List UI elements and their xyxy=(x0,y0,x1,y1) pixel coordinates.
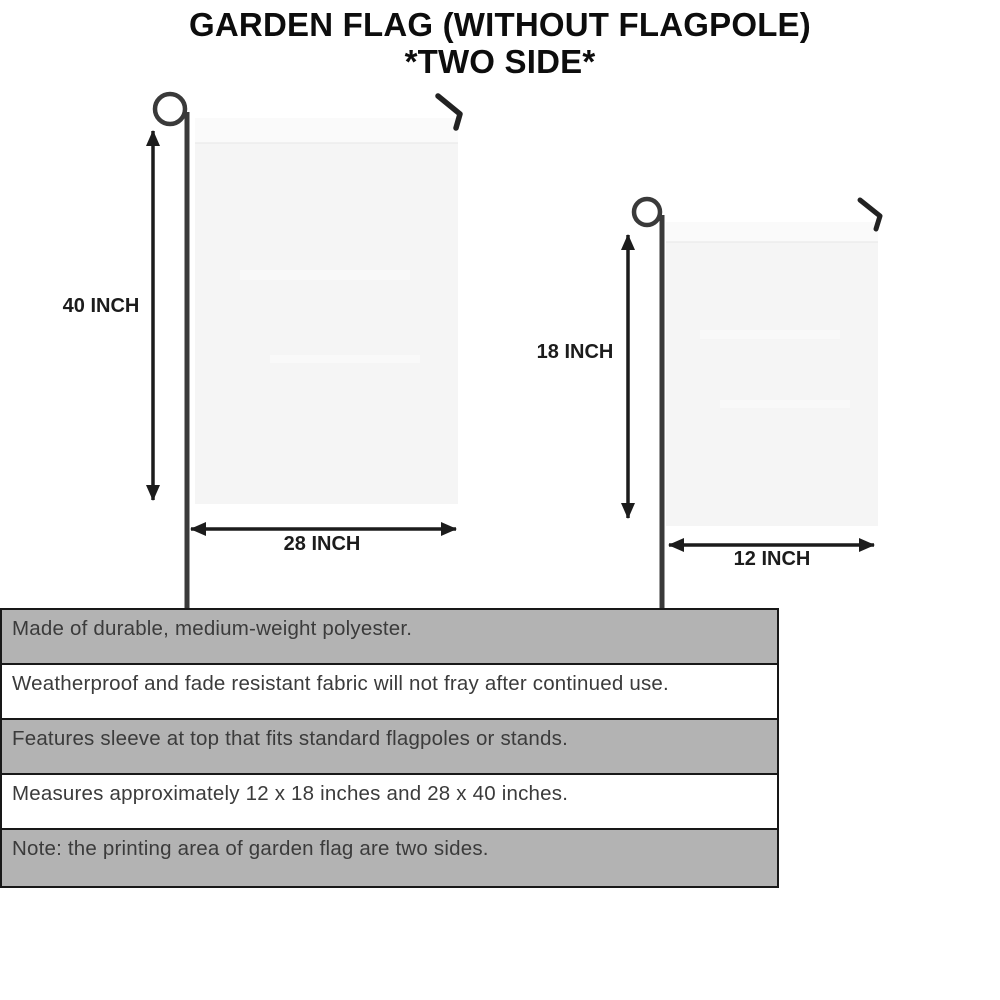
large-flag-group xyxy=(153,94,460,608)
large-flag-wrinkle xyxy=(240,270,410,280)
small-flag-fabric xyxy=(666,222,878,526)
large-flag-height-label: 40 INCH xyxy=(46,295,156,318)
feature-row-sleeve: Features sleeve at top that fits standar… xyxy=(2,720,777,775)
large-flag-wrinkle xyxy=(270,355,420,363)
feature-row-note: Note: the printing area of garden flag a… xyxy=(2,830,777,886)
large-flag-sleeve xyxy=(195,118,458,143)
small-flag-sleeve xyxy=(666,222,878,242)
small-flag-group xyxy=(628,199,880,608)
small-flag-width-label: 12 INCH xyxy=(712,548,832,571)
small-flag-wrinkle xyxy=(700,330,840,339)
feature-table: Made of durable, medium-weight polyester… xyxy=(0,608,779,888)
small-flagpole-loop xyxy=(634,199,660,225)
large-flag-width-label: 28 INCH xyxy=(262,533,382,556)
small-flag-wrinkle xyxy=(720,400,850,408)
feature-row-weatherproof: Weatherproof and fade resistant fabric w… xyxy=(2,665,777,720)
large-flagpole-loop xyxy=(155,94,185,124)
large-flag-fabric xyxy=(195,118,458,504)
garden-flag-infographic: GARDEN FLAG (WITHOUT FLAGPOLE) *TWO SIDE… xyxy=(0,0,1000,1000)
feature-row-measurements: Measures approximately 12 x 18 inches an… xyxy=(2,775,777,830)
feature-row-material: Made of durable, medium-weight polyester… xyxy=(2,610,777,665)
small-flag-height-label: 18 INCH xyxy=(520,341,630,364)
